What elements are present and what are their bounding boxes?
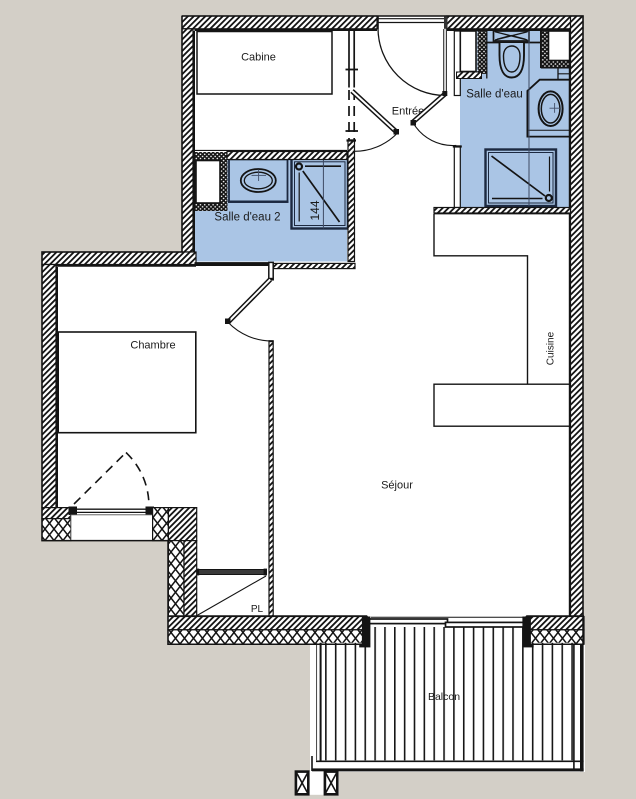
svg-text:Balcon: Balcon [428,691,460,703]
svg-text:Salle d'eau 2: Salle d'eau 2 [214,212,280,224]
svg-text:144: 144 [308,200,322,220]
svg-text:Cuisine: Cuisine [546,331,557,365]
svg-text:Séjour: Séjour [381,480,413,492]
svg-text:PL: PL [251,604,264,615]
svg-text:Salle d'eau: Salle d'eau [466,89,523,101]
svg-text:Chambre: Chambre [130,340,175,352]
svg-text:Cabine: Cabine [241,52,276,64]
